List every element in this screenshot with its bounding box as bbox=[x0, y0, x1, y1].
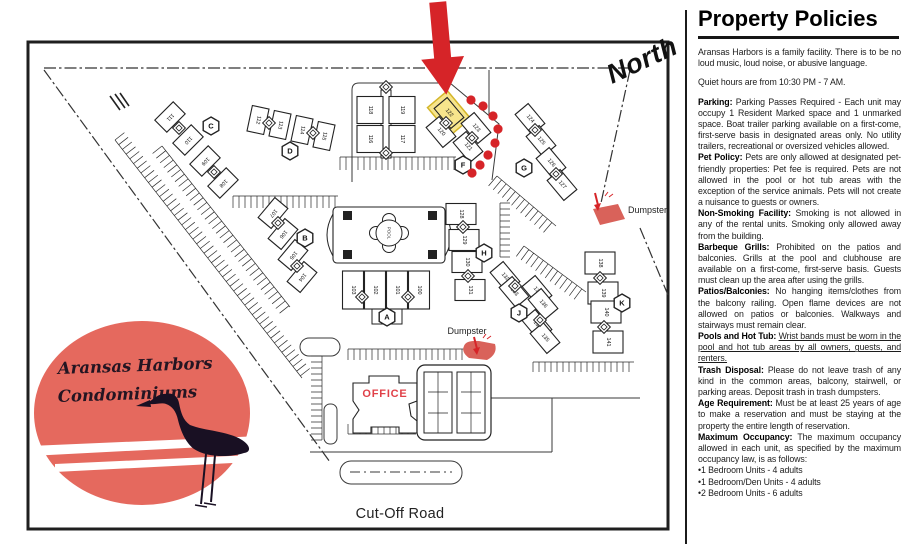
dumpsters: DumpsterDumpster bbox=[447, 192, 667, 360]
occupancy-bullets: •1 Bedroom Units - 4 adults•1 Bedroom/De… bbox=[698, 465, 901, 499]
building-letter-C: C bbox=[203, 117, 219, 135]
parking-row bbox=[153, 146, 290, 313]
building-number: 141 bbox=[605, 338, 611, 347]
property-boundary bbox=[601, 70, 630, 203]
building-number: 138 bbox=[597, 259, 603, 268]
building-number: 140 bbox=[603, 308, 609, 317]
svg-text:D: D bbox=[287, 147, 293, 156]
svg-text:A: A bbox=[384, 313, 390, 322]
building-138: 138 bbox=[585, 252, 615, 274]
building-116: 116 bbox=[357, 126, 383, 153]
policies-panel: Property Policies Aransas Harbors is a f… bbox=[687, 0, 910, 552]
building-number: 119 bbox=[399, 106, 405, 115]
svg-text:H: H bbox=[481, 249, 486, 258]
policy-section: Trash Disposal: Please do not leave tras… bbox=[698, 365, 901, 399]
parking-island bbox=[300, 338, 340, 356]
svg-text:C: C bbox=[208, 122, 214, 131]
svg-text:K: K bbox=[619, 299, 625, 308]
office-building: OFFICE bbox=[353, 376, 417, 433]
policy-section: Maximum Occupancy: The maximum occupancy… bbox=[698, 432, 901, 466]
intro-paragraph: Aransas Harbors is a family facility. Th… bbox=[698, 47, 901, 69]
policy-section: Pools and Hot Tub: Wrist bands must be w… bbox=[698, 331, 901, 365]
office-label: OFFICE bbox=[362, 388, 407, 400]
building-118: 118 bbox=[357, 97, 383, 124]
building-119: 119 bbox=[389, 97, 415, 124]
logo-sun bbox=[34, 321, 250, 505]
building-number: 130 bbox=[464, 258, 470, 267]
pool-clubhouse: POOL bbox=[327, 207, 451, 263]
parking-row bbox=[311, 356, 322, 440]
parking-row bbox=[489, 176, 556, 232]
parking-row bbox=[340, 157, 456, 170]
building-number: 139 bbox=[600, 289, 606, 298]
policy-section: Patios/Balconies: No hanging items/cloth… bbox=[698, 286, 901, 331]
building-101: 101 bbox=[387, 271, 408, 309]
policy-section: Age Requirement: Must be at least 25 yea… bbox=[698, 398, 901, 432]
policy-section: Non-Smoking Facility: Smoking is not all… bbox=[698, 208, 901, 242]
policy-sections: Parking: Parking Passes Required - Each … bbox=[698, 97, 901, 466]
building-letter-D: D bbox=[282, 142, 298, 160]
title-underline bbox=[698, 36, 899, 39]
tennis-courts bbox=[417, 365, 491, 440]
building-letter-J: J bbox=[511, 304, 527, 322]
dumpster-icon bbox=[463, 341, 495, 360]
dumpster-label: Dumpster bbox=[447, 326, 486, 336]
building-128: 128 bbox=[446, 204, 476, 225]
policy-section: Pet Policy: Pets are only allowed at des… bbox=[698, 152, 901, 208]
parking-row bbox=[500, 203, 510, 257]
building-letter-B: B bbox=[297, 229, 313, 247]
building-letter-H: H bbox=[476, 244, 492, 262]
road-label: Cut-Off Road bbox=[356, 506, 445, 522]
building-number: 117 bbox=[399, 135, 405, 144]
building-letter-G: G bbox=[516, 159, 532, 177]
map-annotation-smudge bbox=[110, 93, 129, 110]
property-boundary bbox=[640, 228, 668, 295]
policy-section: Parking: Parking Passes Required - Each … bbox=[698, 97, 901, 153]
building-number: 131 bbox=[467, 286, 473, 295]
building-131: 131 bbox=[455, 280, 485, 301]
svg-text:J: J bbox=[517, 309, 521, 318]
building-number: 100 bbox=[416, 286, 422, 295]
parking-island bbox=[324, 404, 337, 444]
svg-text:F: F bbox=[461, 161, 466, 170]
building-number: 128 bbox=[458, 210, 464, 219]
occupancy-bullet: •2 Bedroom Units - 6 adults bbox=[698, 488, 901, 499]
site-map: POOLOFFICE111110109108112113114115118119… bbox=[0, 0, 686, 552]
building-141: 141 bbox=[593, 331, 623, 353]
dumpster-label: Dumpster bbox=[628, 205, 667, 215]
building-number: 118 bbox=[367, 106, 373, 115]
building-number: 103 bbox=[350, 286, 356, 295]
svg-text:B: B bbox=[302, 234, 308, 243]
panel-title: Property Policies bbox=[698, 6, 901, 32]
parking-row bbox=[533, 362, 634, 372]
building-number: 129 bbox=[461, 236, 467, 245]
occupancy-bullet: •1 Bedroom/Den Units - 4 adults bbox=[698, 477, 901, 488]
aransas-harbors-logo: Aransas HarborsCondominiums bbox=[30, 321, 262, 507]
building-100: 100 bbox=[409, 271, 430, 309]
red-arrow bbox=[416, 0, 467, 96]
building-117: 117 bbox=[389, 126, 415, 153]
parking-row bbox=[348, 349, 466, 360]
north-label: North bbox=[602, 31, 682, 90]
building-letter-K: K bbox=[614, 294, 630, 312]
building-number: 102 bbox=[372, 286, 378, 295]
building-number: 116 bbox=[367, 135, 373, 144]
quiet-hours-paragraph: Quiet hours are from 10:30 PM - 7 AM. bbox=[698, 77, 901, 88]
site-map-svg: POOLOFFICE111110109108112113114115118119… bbox=[0, 0, 686, 552]
building-number: 101 bbox=[394, 286, 400, 295]
occupancy-bullet: •1 Bedroom Units - 4 adults bbox=[698, 465, 901, 476]
svg-text:G: G bbox=[521, 164, 527, 173]
building-102: 102 bbox=[365, 271, 386, 309]
building-letter-A: A bbox=[379, 308, 395, 326]
policy-section: Barbeque Grills: Prohibited on the patio… bbox=[698, 242, 901, 287]
pool-label: POOL bbox=[387, 227, 392, 240]
building-103: 103 bbox=[343, 271, 364, 309]
